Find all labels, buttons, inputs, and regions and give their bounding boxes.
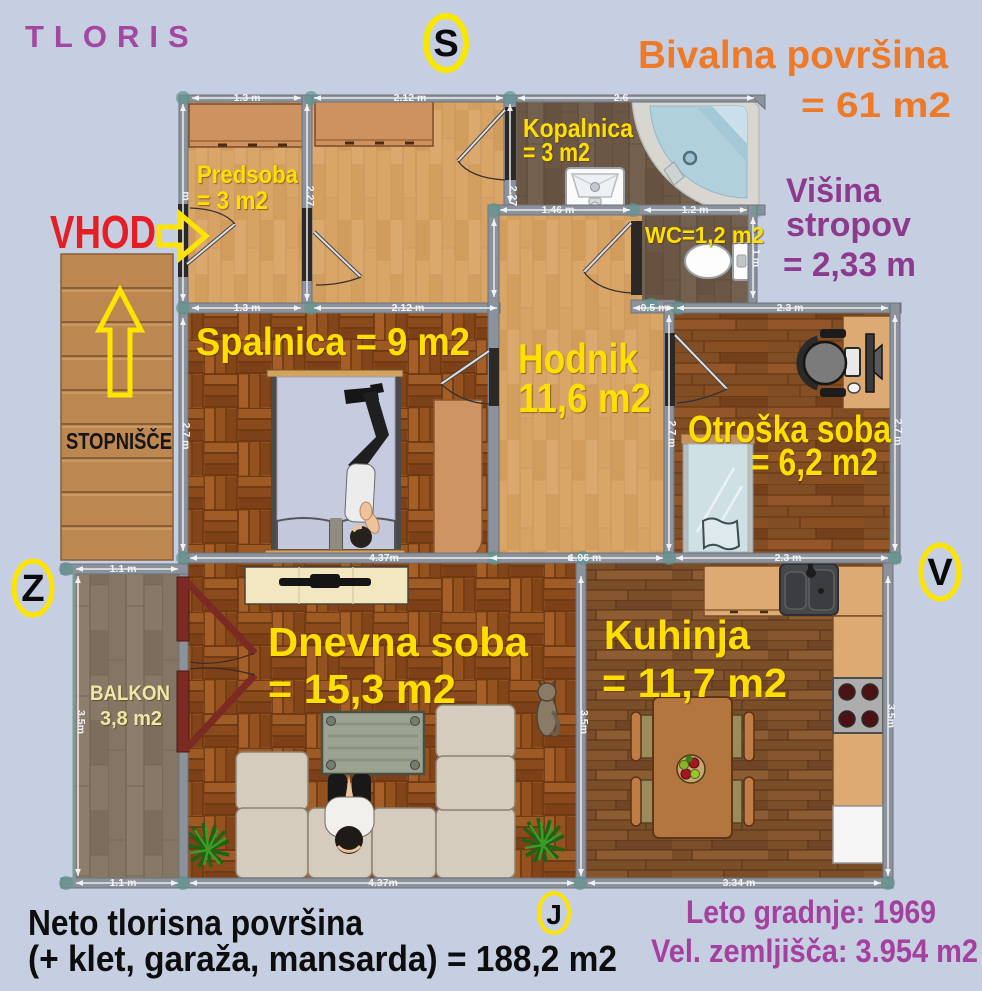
svg-text:2.12 m: 2.12 m <box>394 92 427 104</box>
svg-text:= 6,2 m2: = 6,2 m2 <box>751 442 878 484</box>
svg-text:stropov: stropov <box>786 206 911 244</box>
svg-text:WC=1,2 m2: WC=1,2 m2 <box>645 222 764 248</box>
svg-text:1.46 m: 1.46 m <box>542 204 575 216</box>
svg-text:4.37m: 4.37m <box>369 552 399 564</box>
svg-text:Bivalna površina: Bivalna površina <box>638 34 948 77</box>
svg-text:Leto gradnje: 1969: Leto gradnje: 1969 <box>686 894 936 930</box>
svg-text:2.7 m: 2.7 m <box>180 423 192 450</box>
svg-text:2.27: 2.27 <box>507 186 519 207</box>
svg-text:Kuhinja: Kuhinja <box>604 612 751 658</box>
svg-text:2.3 m: 2.3 m <box>775 552 802 564</box>
svg-text:0.5 m: 0.5 m <box>641 302 668 314</box>
svg-text:Dnevna soba: Dnevna soba <box>268 619 529 665</box>
svg-text:2.12 m: 2.12 m <box>392 302 425 314</box>
svg-text:Z: Z <box>21 568 44 610</box>
svg-text:BALKON: BALKON <box>90 682 170 705</box>
svg-text:V: V <box>927 552 953 594</box>
svg-text:= 61 m2: = 61 m2 <box>801 86 951 125</box>
svg-text:2.27: 2.27 <box>304 186 316 207</box>
svg-text:2.6: 2.6 <box>614 92 629 104</box>
svg-text:Vel. zemljišča: 3.954 m2: Vel. zemljišča: 3.954 m2 <box>651 933 978 969</box>
svg-text:(+ klet, garaža, mansarda) = 1: (+ klet, garaža, mansarda) = 188,2 m2 <box>28 938 617 979</box>
svg-text:1.3 m: 1.3 m <box>234 302 261 314</box>
svg-text:1.1 m: 1.1 m <box>110 563 137 575</box>
svg-text:= 2,33 m: = 2,33 m <box>783 246 916 284</box>
svg-text:TLORIS: TLORIS <box>25 19 199 54</box>
svg-text:Spalnica = 9 m2: Spalnica = 9 m2 <box>196 321 470 364</box>
svg-text:VHOD: VHOD <box>50 206 156 258</box>
svg-text:2.7 m: 2.7 m <box>666 421 678 448</box>
svg-text:Višina: Višina <box>786 172 882 210</box>
svg-text:1.1 m: 1.1 m <box>110 877 137 889</box>
svg-text:m: m <box>180 191 192 200</box>
svg-text:3.5m: 3.5m <box>885 704 897 728</box>
svg-text:11,6 m2: 11,6 m2 <box>518 375 651 421</box>
svg-text:2.3 m: 2.3 m <box>777 302 804 314</box>
svg-text:= 15,3 m2: = 15,3 m2 <box>268 666 456 712</box>
svg-text:= 3 m2: = 3 m2 <box>523 137 590 167</box>
svg-text:3.34 m: 3.34 m <box>723 877 756 889</box>
svg-text:S: S <box>433 23 458 65</box>
svg-text:= 11,7 m2: = 11,7 m2 <box>602 660 787 706</box>
svg-text:J: J <box>546 899 562 930</box>
svg-text:1.2 m: 1.2 m <box>682 204 709 216</box>
svg-text:3,8 m2: 3,8 m2 <box>100 708 162 730</box>
svg-text:2.7 m: 2.7 m <box>892 419 904 446</box>
svg-text:3.5m: 3.5m <box>75 710 87 734</box>
svg-text:Neto tlorisna površina: Neto tlorisna površina <box>28 902 364 943</box>
svg-text:1 m: 1 m <box>750 249 762 267</box>
svg-text:3.5m: 3.5m <box>578 710 590 734</box>
svg-text:Predsoba: Predsoba <box>197 161 299 189</box>
svg-text:STOPNIŠČE: STOPNIŠČE <box>66 427 172 454</box>
svg-text:= 3 m2: = 3 m2 <box>197 187 268 215</box>
svg-text:1.96 m: 1.96 m <box>569 552 602 564</box>
svg-text:4.37m: 4.37m <box>368 877 398 889</box>
svg-text:1.3 m: 1.3 m <box>234 92 261 104</box>
